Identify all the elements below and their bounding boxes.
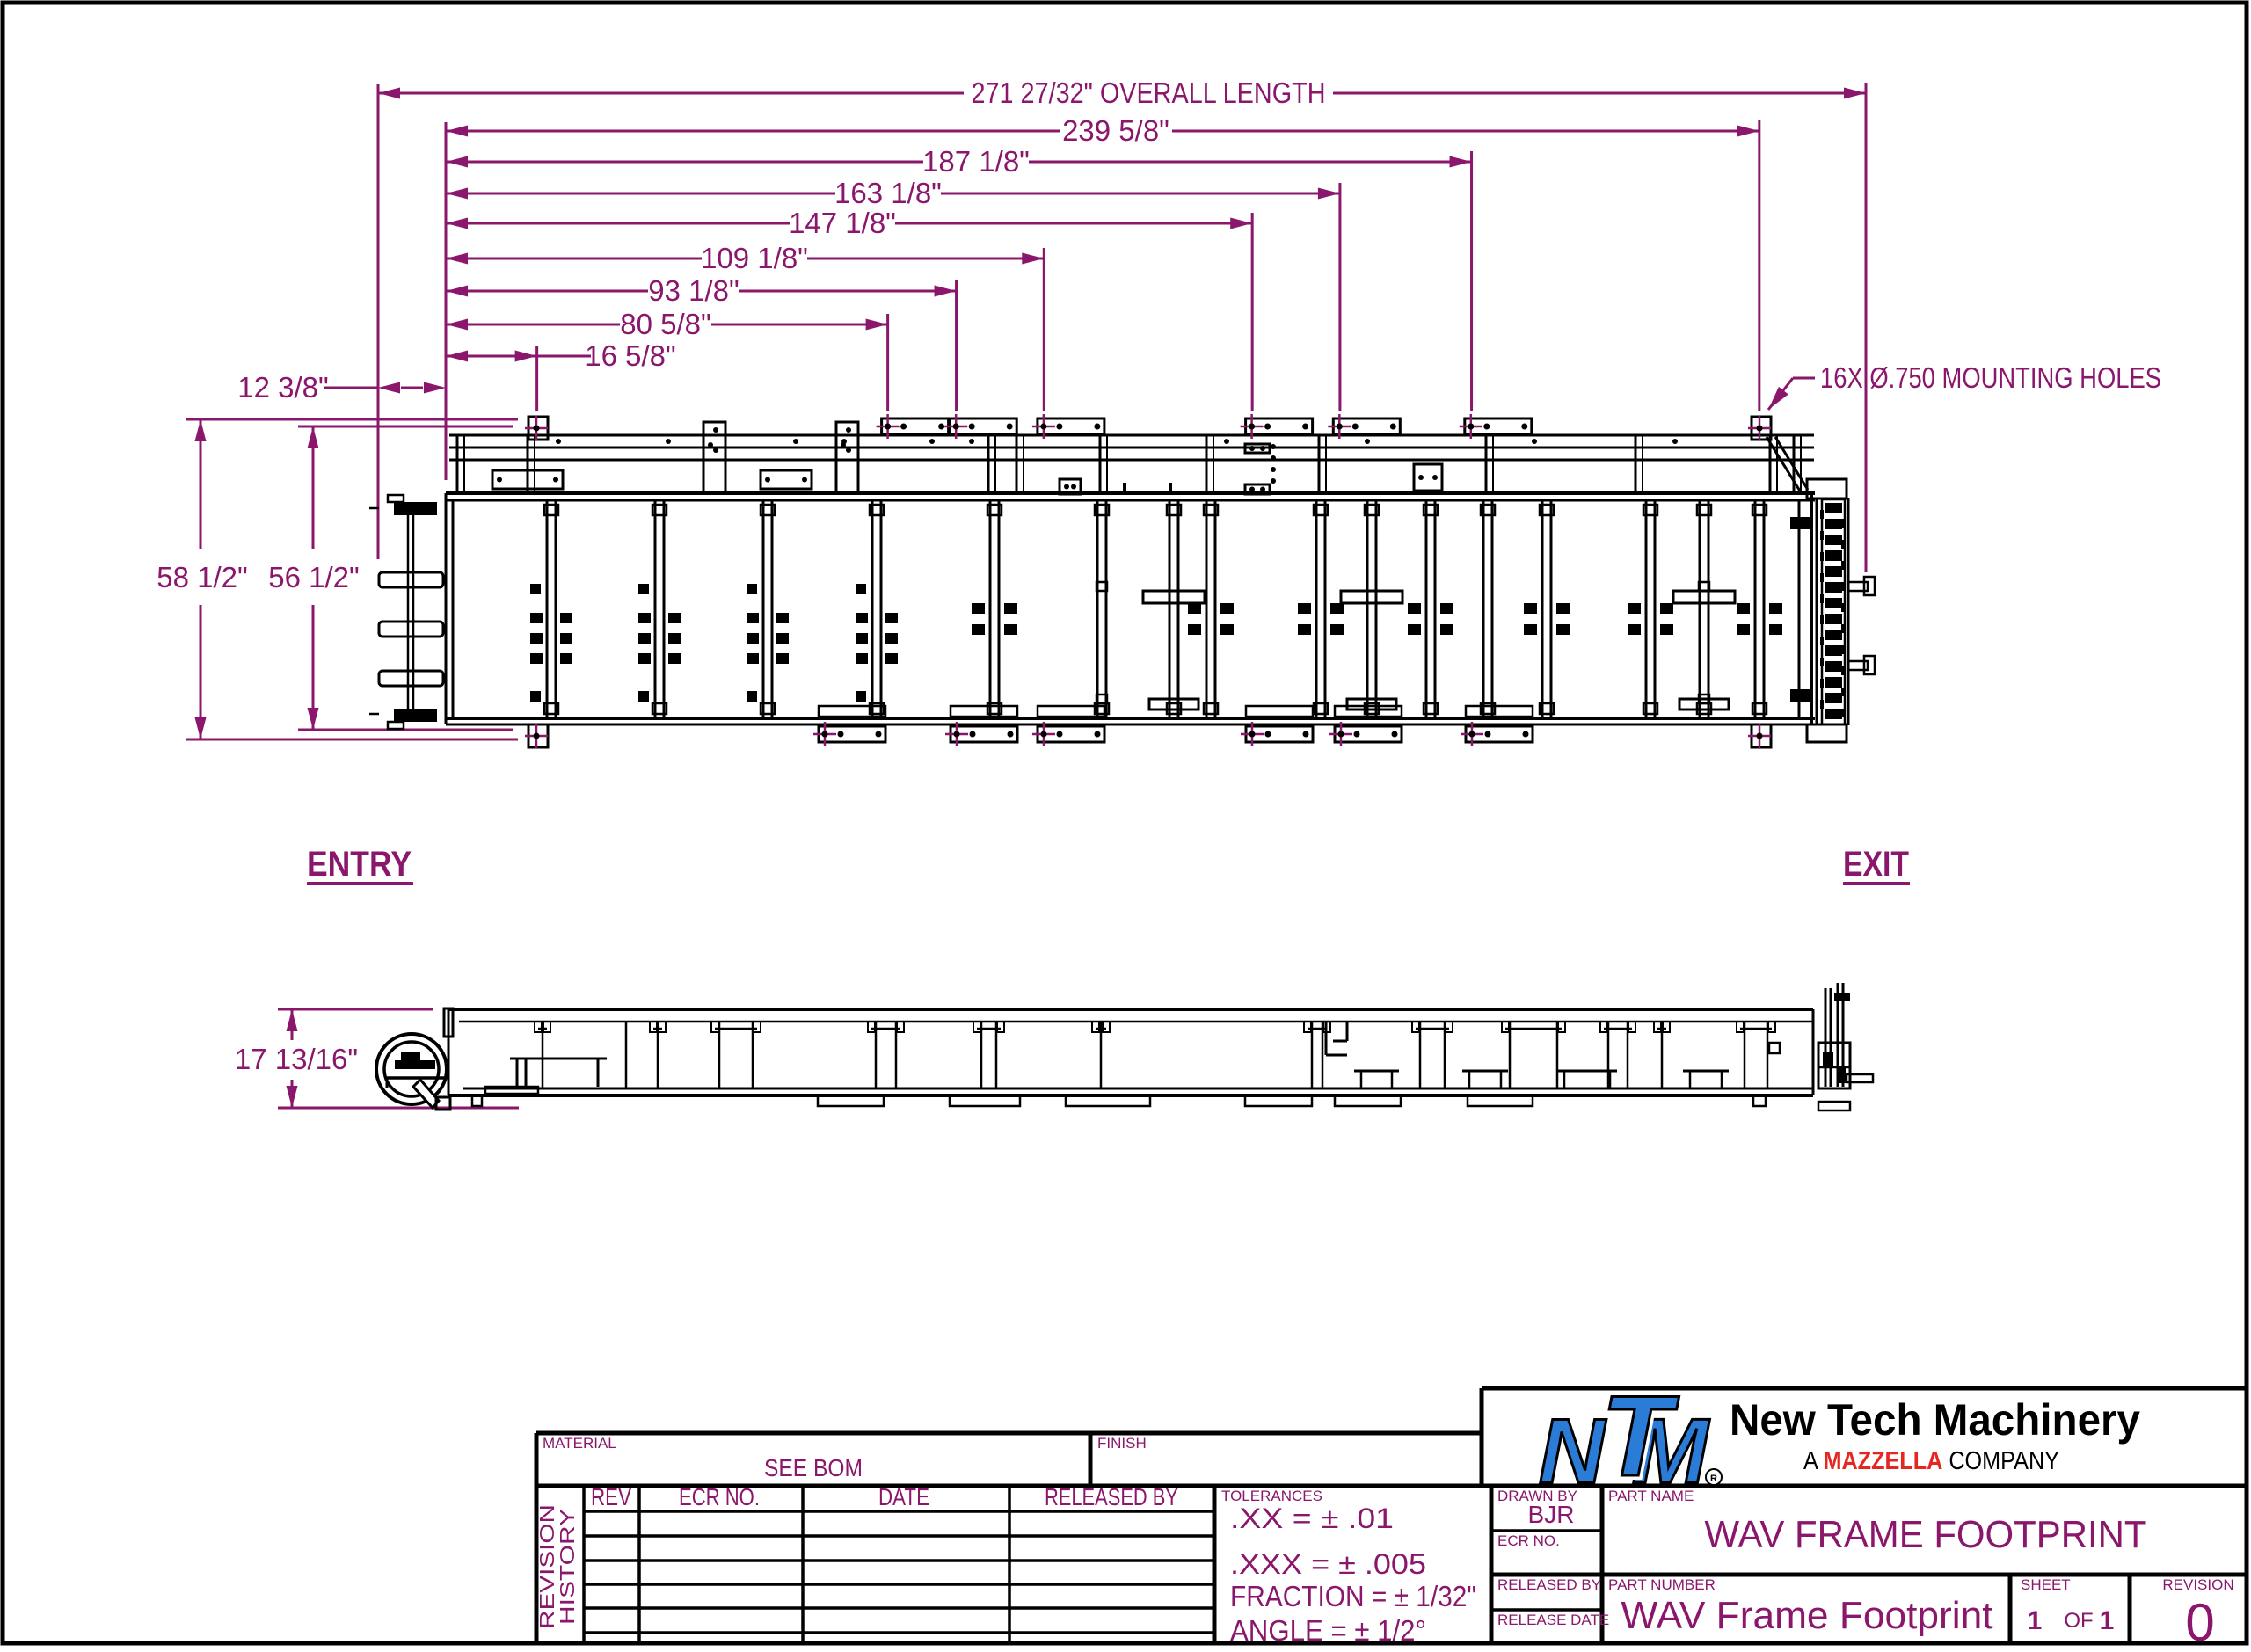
svg-text:239 5/8": 239 5/8" [1062, 114, 1169, 147]
svg-text:RELEASED BY: RELEASED BY [1045, 1483, 1178, 1510]
svg-text:EXIT: EXIT [1843, 845, 1909, 884]
svg-text:1: 1 [2100, 1606, 2115, 1635]
svg-text:SHEET: SHEET [2021, 1576, 2071, 1593]
svg-text:ENTRY: ENTRY [307, 845, 412, 884]
svg-text:271 27/32" OVERALL LENGTH: 271 27/32" OVERALL LENGTH [972, 76, 1326, 109]
svg-text:REVISION: REVISION [2162, 1576, 2233, 1593]
svg-text:0: 0 [2185, 1593, 2214, 1648]
svg-text:A MAZZELLA COMPANY: A MAZZELLA COMPANY [1803, 1447, 2059, 1475]
svg-text:147 1/8": 147 1/8" [789, 207, 896, 239]
svg-text:WAV Frame Footprint: WAV Frame Footprint [1621, 1594, 1993, 1637]
svg-text:REV: REV [591, 1483, 631, 1510]
svg-text:56 1/2": 56 1/2" [268, 561, 359, 593]
svg-text:.XXX = ± .005: .XXX = ± .005 [1230, 1548, 1426, 1580]
svg-text:RELEASE DATE: RELEASE DATE [1497, 1612, 1609, 1628]
svg-text:SEE BOM: SEE BOM [764, 1454, 863, 1481]
svg-text:93 1/8": 93 1/8" [648, 274, 739, 307]
svg-text:16 5/8": 16 5/8" [585, 339, 675, 372]
svg-text:1: 1 [2028, 1606, 2043, 1635]
svg-text:16X Ø.750 MOUNTING HOLES: 16X Ø.750 MOUNTING HOLES [1820, 361, 2161, 394]
svg-text:OF: OF [2064, 1609, 2093, 1633]
svg-text:BJR: BJR [1528, 1501, 1575, 1528]
svg-text:R: R [1710, 1474, 1717, 1484]
svg-text:12 3/8": 12 3/8" [237, 371, 328, 404]
svg-text:DATE: DATE [878, 1483, 929, 1510]
svg-text:80 5/8": 80 5/8" [620, 308, 710, 340]
svg-text:FRACTION = ± 1/32": FRACTION = ± 1/32" [1230, 1580, 1476, 1612]
svg-text:PART NUMBER: PART NUMBER [1608, 1576, 1716, 1593]
svg-text:58 1/2": 58 1/2" [157, 561, 247, 593]
svg-text:163 1/8": 163 1/8" [834, 177, 942, 209]
svg-text:ECR NO.: ECR NO. [1497, 1532, 1560, 1549]
svg-text:ECR NO.: ECR NO. [679, 1483, 760, 1510]
svg-text:ANGLE = ± 1/2°: ANGLE = ± 1/2° [1230, 1614, 1426, 1647]
svg-text:WAV FRAME FOOTPRINT: WAV FRAME FOOTPRINT [1705, 1513, 2147, 1556]
svg-text:MATERIAL: MATERIAL [543, 1435, 616, 1452]
svg-text:187 1/8": 187 1/8" [922, 145, 1030, 178]
svg-text:.XX = ± .01: .XX = ± .01 [1230, 1503, 1394, 1534]
svg-text:HISTORY: HISTORY [556, 1509, 579, 1625]
svg-text:109 1/8": 109 1/8" [701, 242, 808, 274]
svg-text:FINISH: FINISH [1097, 1435, 1147, 1452]
svg-text:New Tech Machinery: New Tech Machinery [1730, 1395, 2140, 1445]
svg-text:T: T [1601, 1372, 1679, 1500]
svg-text:17 13/16": 17 13/16" [235, 1043, 358, 1075]
svg-text:RELEASED BY: RELEASED BY [1497, 1576, 1601, 1593]
